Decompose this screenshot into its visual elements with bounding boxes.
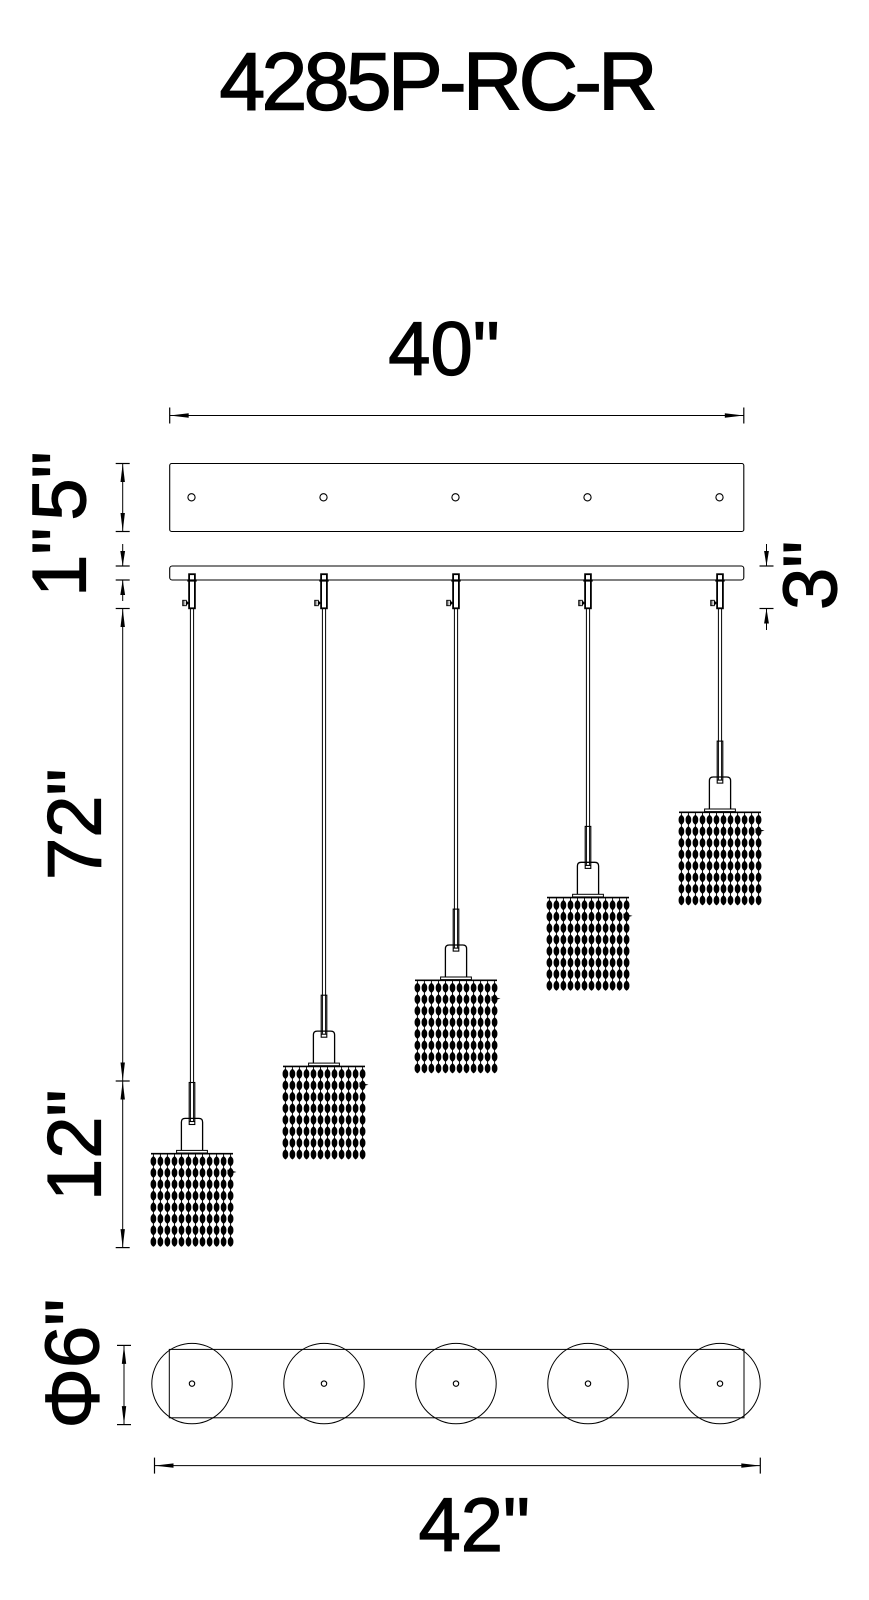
svg-text:72": 72" <box>33 769 118 881</box>
svg-text:Φ6": Φ6" <box>31 1299 116 1429</box>
svg-text:12": 12" <box>33 1090 118 1202</box>
svg-text:1": 1" <box>18 528 103 597</box>
svg-text:42": 42" <box>418 1483 530 1568</box>
svg-text:3": 3" <box>769 541 854 610</box>
svg-text:4285P-RC-R: 4285P-RC-R <box>220 37 658 128</box>
svg-text:5": 5" <box>18 451 103 520</box>
svg-text:40": 40" <box>388 307 500 392</box>
